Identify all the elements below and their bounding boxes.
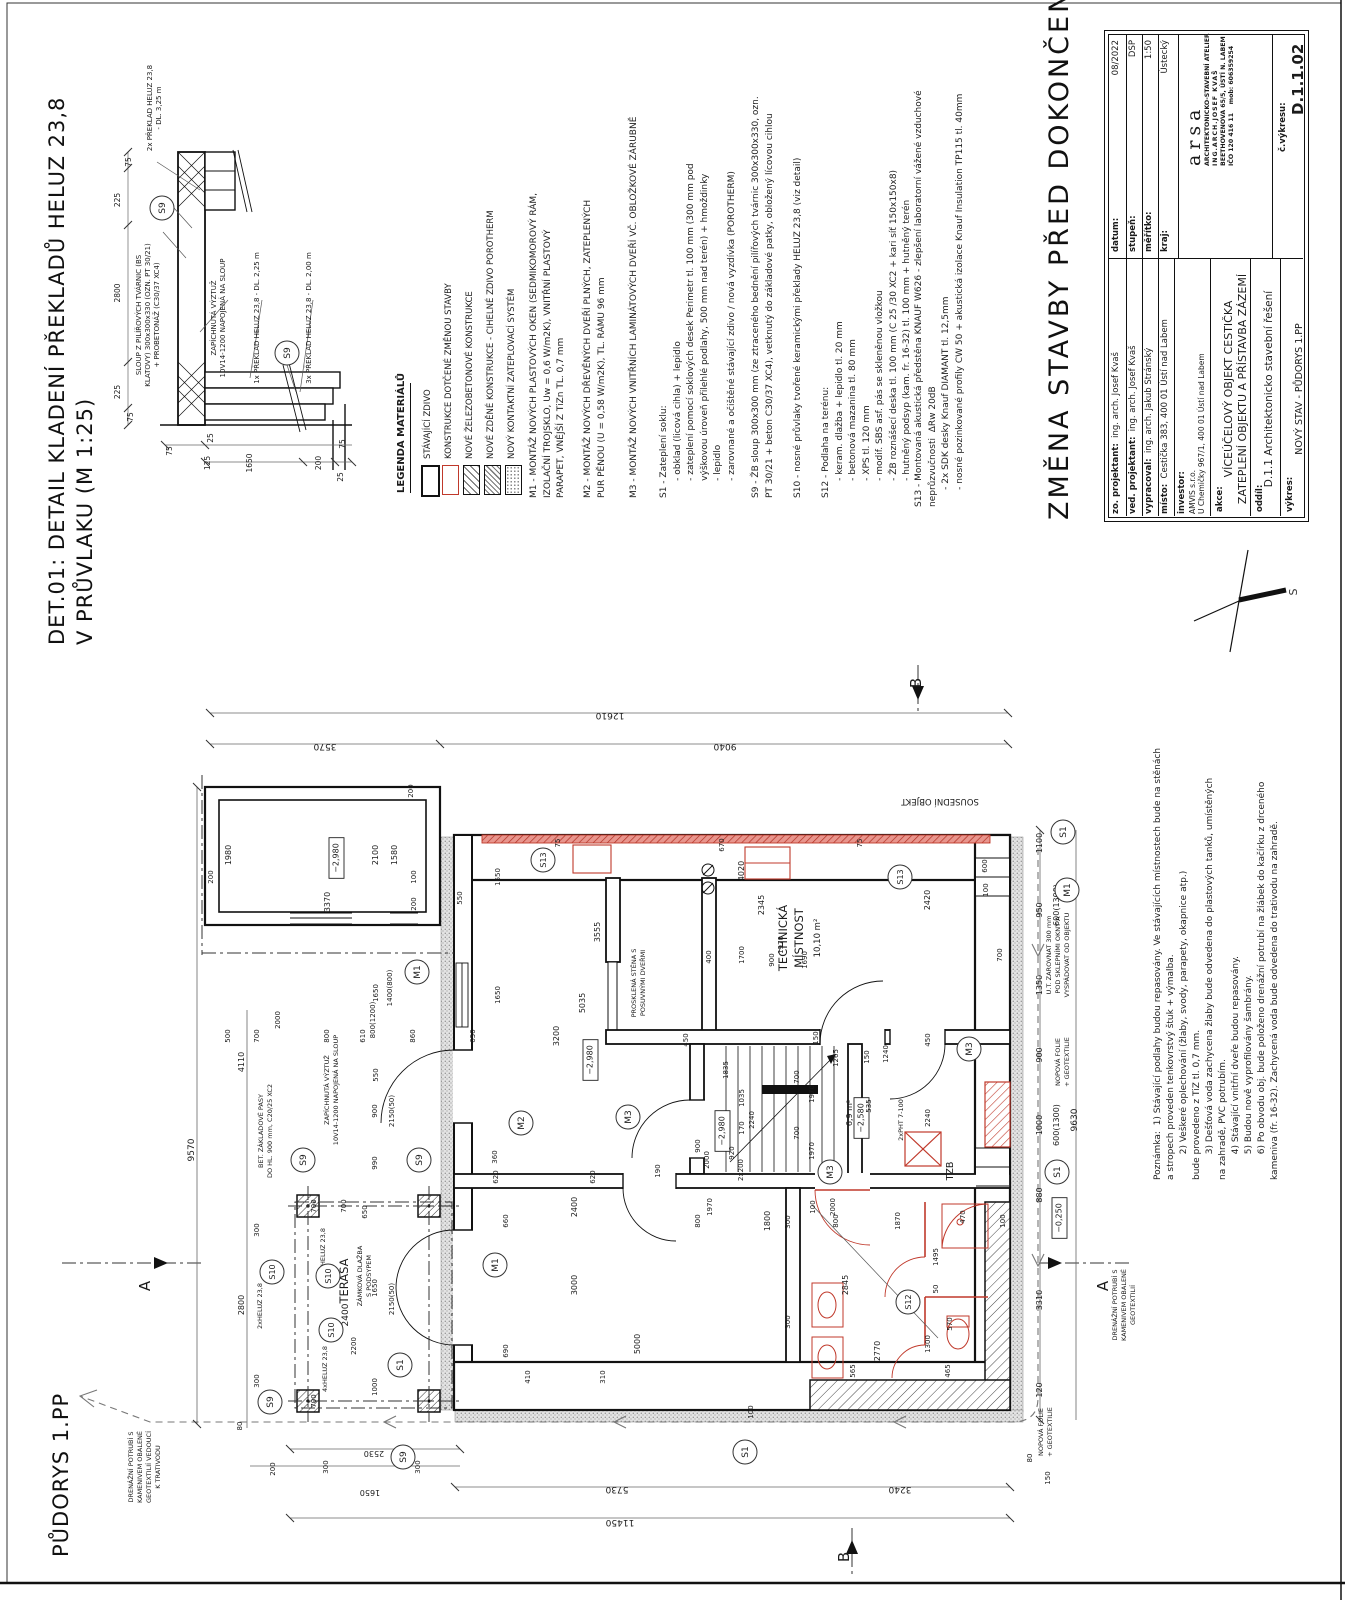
note-m3: M3 - MONTÁŽ NOVÝCH VNITŘNÍCH LAMINÁTOVÝC…	[628, 68, 642, 498]
detail-label: 3x PŘEKLAD HELUZ 23,8 - DL. 2,00 m	[304, 252, 313, 384]
arsa-line4: IČO 120 416 11 mob: 606359254	[1227, 38, 1236, 166]
plan-label: 570	[946, 1317, 954, 1330]
plan-label: 1650	[360, 1488, 380, 1497]
tb-row-kraj: kraj:Ústecký	[1159, 40, 1172, 252]
detail-label: SLOUP Z PILÍŘOVÝCH TVÁRNIC (BS	[134, 254, 143, 375]
plan-label: 50	[932, 1285, 940, 1294]
plan-label: 2xPHT 7-100	[897, 1099, 905, 1141]
tb-value-investor2: U Chemičky 967/1, 400 01 Ústí nad Labem	[1196, 266, 1207, 514]
plan-label: 170	[738, 1121, 746, 1134]
plan-label: 1970	[777, 936, 785, 954]
detail-label: 25	[206, 433, 215, 443]
detail-label: 125	[203, 456, 212, 471]
north-label: S	[1287, 588, 1300, 595]
detail-label: 75	[124, 157, 133, 167]
plan-label: 2345	[757, 895, 766, 915]
plan-label: 690	[502, 1344, 510, 1357]
plan-label: 300	[322, 1460, 330, 1473]
plan-label: 3370	[323, 892, 332, 912]
note-s13: S13 - Montovaná akustická předstěna KNAU…	[913, 55, 967, 507]
plan-label: 300	[414, 1460, 422, 1473]
plan-label: 700	[310, 1199, 318, 1212]
plan-label: A	[1094, 1280, 1112, 1291]
tb-value: ing. arch. Jakub Stránský	[1144, 348, 1154, 459]
plan-label: 650	[361, 1205, 369, 1218]
plan-label: 800	[323, 1029, 331, 1042]
plan-label: 100	[982, 883, 990, 896]
plan-label: 2000	[703, 1151, 711, 1169]
plan-label: 3555	[593, 922, 602, 942]
plan-label: 5000	[633, 1334, 642, 1354]
plan-label: 2000	[829, 1198, 837, 1216]
plan-label: ZAPÍCHNUTÁ VÝZTUŽ	[322, 1055, 331, 1125]
plan-label: 2000	[274, 1011, 282, 1029]
plan-label: NOPOVÁ FOLIE	[1053, 1038, 1062, 1086]
tb-label: vypracoval:	[1144, 458, 1154, 514]
plan-label: 2400	[570, 1197, 579, 1217]
legend-label-existing: STÁVAJÍCÍ ZDIVO	[422, 129, 435, 459]
plan-label: 360	[491, 1150, 499, 1163]
plan-label: −2,980	[718, 1116, 727, 1146]
plan-label: 470	[959, 1210, 967, 1223]
plan-label: TZB	[945, 1162, 956, 1182]
plan-label: 100	[410, 870, 418, 883]
tb-value: Ústecký	[1159, 40, 1172, 74]
ref-bubble-label: M1	[1063, 883, 1073, 897]
plan-label: 150	[863, 1050, 871, 1063]
ref-bubble-label: S9	[283, 347, 293, 359]
ref-bubble-label: S1	[1053, 1166, 1063, 1177]
detail-label: + PROBETONÁŽ (C30/37 XC4)	[152, 262, 161, 367]
plan-label: 620	[589, 1170, 597, 1183]
plan-label: 2150(50)	[388, 1283, 396, 1315]
plan-label: 150	[1044, 1471, 1052, 1484]
tb-row-vyp: vypracoval: ing. arch. Jakub Stránský	[1143, 266, 1156, 514]
plan-label: B	[907, 678, 925, 688]
plan-label: 1035	[738, 1089, 746, 1107]
plan-label: 700	[340, 1199, 348, 1212]
plan-label: 600	[981, 859, 989, 872]
tb-label: datum:	[1110, 218, 1123, 252]
plan-label: POD SKLEPNÍMI OKNY A	[1053, 916, 1062, 994]
tb-value: 1:50	[1143, 40, 1156, 59]
plan-label: 1350	[1035, 975, 1044, 995]
plan-label: 800	[832, 1214, 840, 1227]
plan-label: 1870	[894, 1212, 902, 1230]
tb-value-akce2: ZATEPLENÍ OBJEKTU A PŘÍSTAVBA ZÁZEMÍ	[1235, 264, 1252, 514]
ref-bubble-label: S1	[741, 1446, 751, 1457]
plan-label: 550	[372, 1068, 380, 1081]
plan-label: 3200	[552, 1026, 561, 1046]
ref-bubble-label: M1	[413, 965, 423, 979]
ref-bubble-label: S9	[158, 202, 168, 214]
tb-row-stupen: stupeň:DSP	[1127, 40, 1140, 252]
plan-label: 9040	[713, 741, 736, 751]
legend-swatch-affected	[442, 465, 459, 495]
plan-label: 1970	[808, 1085, 816, 1103]
tb-row-datum: datum:08/2022	[1110, 40, 1123, 252]
tb-divider-h	[1109, 258, 1303, 259]
detail-label: 2x PŘEKLAD HELUZ 23,8	[145, 65, 154, 151]
plan-label: 100	[999, 1214, 1007, 1227]
tb-row-meritko: měřítko:1:50	[1143, 40, 1156, 252]
tb-value: DSP	[1127, 40, 1140, 57]
plan-label: 700	[996, 948, 1004, 961]
plan-label: POSUVNÝMI DVEŘMI	[638, 950, 647, 1016]
plan-label: 700	[253, 1029, 261, 1042]
plan-label: 75	[554, 839, 562, 848]
plan-label: 700	[310, 1394, 318, 1407]
plan-label: KAMENIVEM OBALENÉ	[1119, 1269, 1128, 1341]
plan-label: 1580	[390, 845, 399, 865]
plan-label: −2,980	[586, 1045, 595, 1075]
tb-value: ing. arch. Josef Kvaš	[1111, 352, 1121, 443]
detail-label: KLATOVY) 300x300x330 (OZN. PT 30/21)	[144, 243, 152, 387]
drawing-sheet: 752252800225757525125165020025752x PŘEKL…	[0, 0, 1345, 1600]
detail-label: 1650	[245, 453, 254, 472]
plan-label: DRENÁŽNÍ POTRUBÍ S	[1110, 1269, 1119, 1340]
plan-label: 900	[1035, 1047, 1044, 1062]
plan-label: 10,10 m²	[813, 919, 823, 958]
tb-value: Cestička 383, 400 01 Ústí nad Labem	[1160, 319, 1170, 484]
ref-bubble-label: S1	[396, 1359, 406, 1370]
plan-label: 2530	[364, 1449, 384, 1458]
plan-label: 300	[784, 1215, 792, 1228]
ref-bubble-label: M3	[624, 1110, 634, 1124]
legend-title: LEGENDA MATERIÁLŮ	[394, 383, 411, 493]
ref-bubble-label: M1	[491, 1258, 501, 1272]
plan-label: 75	[856, 839, 864, 848]
tb-label: měřítko:	[1143, 212, 1156, 252]
tb-label: stupeň:	[1127, 216, 1140, 252]
plan-label: 1300	[924, 1335, 932, 1353]
plan-label: 150	[812, 1031, 820, 1044]
plan-label: 200	[410, 897, 418, 910]
plan-label: −2,980	[332, 843, 341, 873]
plan-label: 80	[236, 1422, 244, 1431]
plan-label: 1980	[224, 845, 233, 865]
tb-row-zo: zo. projektant: ing. arch. Josef Kvaš	[1110, 266, 1123, 514]
tb-value-vykres: NOVÝ STAV - PŮDORYS 1.PP	[1293, 264, 1307, 514]
plan-label: 900	[371, 1104, 379, 1117]
plan-label: 900	[694, 1139, 702, 1152]
plan-label: 2xHELUZ 23,8	[256, 1283, 264, 1329]
plan-label: + GEOTEXTILIE	[1063, 1037, 1071, 1087]
detail-label: 10V14-1200 NAPOJENÁ NA SLOUP	[218, 259, 227, 378]
plan-label: 1700	[738, 946, 746, 964]
plan-label: 4110	[237, 1052, 246, 1072]
plan-label: 400	[705, 950, 713, 963]
ref-bubble-label: S10	[327, 1322, 336, 1337]
plan-label: 120	[1035, 1382, 1044, 1397]
ref-bubble-label: S13	[896, 869, 905, 884]
plan-label: 610	[359, 1029, 367, 1042]
tb-label: místo:	[1160, 484, 1170, 514]
tb-label: zo. projektant:	[1111, 443, 1121, 514]
note-m2: M2 - MONTÁŽ NOVÝCH DŘEVĚNÝCH DVEŘÍ PLNÝC…	[582, 153, 609, 498]
detail-label: 1x PŘEKLAD HELUZ 23,8 - DL. 2,25 m	[252, 252, 261, 384]
note-s12: S12 - Podlaha na terénu: - keram. dlažba…	[820, 158, 915, 498]
main-title: ZMĚNA STAVBY PŘED DOKONČENÍM	[1040, 30, 1081, 520]
plan-label: 450	[682, 1033, 690, 1046]
plan-label: 10V14-1200 NAPOJENÁ NA SLOUP	[331, 1035, 340, 1145]
detail-label: - DL. 3,25 m	[155, 86, 163, 129]
plan-label: 620	[492, 1170, 500, 1183]
plan-label: 11450	[605, 1517, 634, 1527]
detail-label: ZAPÍCHNUTÁ VÝZTUŽ	[209, 280, 218, 355]
note-s9: S9 - ŽB sloup 300x300 mm (ze ztraceného …	[750, 53, 777, 498]
plan-label: 650	[469, 1029, 477, 1042]
plan-label: 2845	[841, 1275, 850, 1295]
plan-label: K TRATIVODU	[154, 1445, 162, 1489]
plan-label: 1240	[882, 1045, 890, 1063]
plan-label: 660	[502, 1214, 510, 1227]
detail-title-line2: V PRŮVLAKU (M 1:25)	[70, 155, 102, 645]
plan-label: 300	[253, 1374, 261, 1387]
detail-label: 25	[336, 472, 345, 482]
plan-label: 1650	[371, 1279, 379, 1297]
ref-bubble-label: M3	[965, 1042, 975, 1056]
ref-bubble-label: S9	[399, 1451, 409, 1463]
plan-label: 600(1300)	[1052, 1104, 1061, 1146]
plan-label: U.T. ZAROVNAT 300 mm	[1045, 916, 1053, 995]
legend-swatch-existing	[421, 465, 440, 497]
plan-label: 2400	[341, 1303, 351, 1326]
plan-label: 1100	[1035, 833, 1044, 853]
plan-label: 4xHELUZ 23,8	[321, 1346, 329, 1392]
note-m1: M1 - MONTÁŽ NOVÝCH PLASTOVÝCH OKEN (SEDM…	[528, 148, 569, 498]
tb-divider	[1178, 34, 1179, 258]
plan-label: 5035	[578, 993, 587, 1013]
tb-value: 08/2022	[1110, 40, 1123, 75]
legend-label-etics: NOVÝ KONTAKTNÍ ZATEPLOVACÍ SYSTÉM	[506, 129, 519, 459]
plan-label: VYSPÁDOVAT OD OBJEKTU	[1062, 912, 1071, 997]
plan-label: 2420	[923, 890, 932, 910]
plan-label: 800	[694, 1214, 702, 1227]
detail-label: 75	[165, 446, 174, 456]
plan-label: −0,250	[1055, 1203, 1064, 1233]
plan-label: 450	[924, 1033, 932, 1046]
plan-label: 410	[524, 1370, 532, 1383]
plan-label: DO HL. 900 mm, C20/25 XC2	[266, 1084, 274, 1178]
plan-label: 1650	[494, 986, 502, 1004]
note-s10: S10 - nosné průvlaky tvořené keramickými…	[792, 143, 806, 498]
plan-label: 1000	[1035, 1115, 1044, 1135]
plan-label: 3570	[313, 741, 336, 751]
plan-label: 3240	[888, 1484, 911, 1494]
detail-label: 200	[314, 456, 323, 471]
ref-bubble-label: S9	[299, 1154, 309, 1166]
legend-label-rc: NOVÉ ŽELEZOBETONOVÉ KONSTRUKCE	[464, 129, 477, 459]
tb-divider	[1272, 34, 1273, 258]
plan-label: + GEOTEXTILIE	[1046, 1407, 1054, 1457]
north-arrow-icon: S	[1194, 550, 1300, 652]
plan-label: 80	[1026, 1454, 1034, 1463]
legend-label-brick: NOVÉ ZDĚNÉ KONSTRUKCE - CIHELNÉ ZDIVO PO…	[485, 129, 498, 459]
plan-label: PROSKLENÁ STĚNA S	[629, 949, 638, 1018]
plan-label: 700	[793, 1070, 801, 1083]
legend-label-affected: KONSTRUKCE DOTČENÉ ZMĚNOU STAVBY	[443, 129, 456, 459]
plan-label: A	[136, 1280, 154, 1291]
plan-label: 1970	[706, 1198, 714, 1216]
plan-label: 1800	[763, 1211, 772, 1231]
tb-value: ing. arch. Josef Kvaš	[1128, 345, 1138, 436]
detail-title-line1: DET.01: DETAIL KLADENÍ PŘEKLADŮ HELUZ 23…	[42, 155, 74, 645]
plan-label: 535	[865, 1099, 873, 1112]
plan-label: 2240	[748, 1111, 756, 1129]
plan-label: 1650	[372, 984, 380, 1002]
plan-label: 860	[409, 1029, 417, 1042]
plan-label: 200	[269, 1462, 277, 1475]
plan-label: SOUSEDNÍ OBJEKT	[900, 796, 978, 808]
plan-label: 12610	[595, 710, 624, 720]
ref-bubble-label: S10	[324, 1268, 333, 1283]
plan-label: NOPOVÁ FOLIE	[1036, 1408, 1045, 1456]
plan-label: 2770	[873, 1341, 882, 1361]
plan-label: 465	[944, 1364, 952, 1377]
plan-label: 2x200	[737, 1159, 745, 1181]
plan-label: 565	[849, 1364, 857, 1377]
ref-bubble-label: M3	[826, 1165, 836, 1179]
plan-label: 5730	[605, 1484, 628, 1494]
plan-label: 1650	[494, 868, 502, 886]
plan-label: 2800	[237, 1295, 246, 1315]
tb-label: ved. projektant:	[1128, 437, 1138, 514]
plan-label: ZÁMKOVÁ DLAŽBA	[355, 1245, 364, 1306]
plan-label: 310	[599, 1370, 607, 1383]
tb-value-cislo: D.1.1.02	[1287, 42, 1310, 115]
ref-bubble-label: S13	[539, 852, 548, 867]
plan-label: GEOTEXTILIÍ VEDOUCÍ	[144, 1431, 153, 1503]
plan-label: 2150(50)	[388, 1095, 396, 1127]
plan-label: 2200	[350, 1337, 358, 1355]
plan-label: 700	[793, 1126, 801, 1139]
plan-label: 3310	[1035, 1290, 1044, 1310]
plan-label: 9570	[187, 1138, 197, 1161]
plan-label: 1265	[832, 1049, 840, 1067]
detail-label: 225	[113, 193, 122, 208]
ref-bubble-label: M2	[517, 1116, 527, 1130]
note-poznamka: Poznámka: 1) Stávající podlahy budou rep…	[1152, 680, 1282, 1180]
ref-bubble-label: S10	[268, 1264, 277, 1279]
legend-swatch-rc	[463, 465, 480, 495]
plan-label: 550	[456, 891, 464, 904]
plan-label: 100	[809, 1200, 817, 1213]
plan-label: 1400(800)	[386, 969, 394, 1006]
tb-label: kraj:	[1159, 230, 1172, 252]
tb-value-oddil: D.1.1 Architektonicko stavební řešení	[1262, 264, 1278, 514]
plan-label: 1970	[808, 1142, 816, 1160]
plan-title: PŮDORYS 1.PP	[46, 1357, 78, 1557]
plan-label: 990	[371, 1156, 379, 1169]
detail-label: 75	[338, 439, 347, 449]
legend-swatch-etics	[505, 465, 522, 495]
plan-label: 800(1200)	[369, 1001, 377, 1038]
plan-label: 3000	[570, 1275, 579, 1295]
plan-label: 500	[224, 1029, 232, 1042]
tb-row-ved: ved. projektant: ing. arch. Josef Kvaš	[1127, 266, 1140, 514]
plan-label: 200	[407, 784, 415, 797]
ref-bubble-label: S9	[266, 1396, 276, 1408]
plan-label: DRENÁŽNÍ POTRUBÍ S	[126, 1431, 135, 1502]
plan-label: 920	[728, 1146, 736, 1159]
plan-label: BET. ZÁKLADOVÉ PASY	[256, 1094, 265, 1168]
detail-label: 225	[113, 385, 122, 400]
plan-label: 2100	[371, 845, 380, 865]
plan-label: 1835	[722, 1061, 730, 1079]
plan-label: GEOTEXTILIÍ	[1128, 1285, 1137, 1325]
plan-label: 950	[1035, 902, 1044, 917]
plan-label: 300	[253, 1223, 261, 1236]
tb-divider	[1280, 258, 1281, 516]
plan-label: 200	[207, 870, 215, 883]
plan-label: 880	[1035, 1187, 1044, 1202]
plan-label: B	[835, 1552, 853, 1562]
tb-row-misto: místo: Cestička 383, 400 01 Ústí nad Lab…	[1159, 266, 1172, 514]
ref-bubble-label: S12	[904, 1294, 913, 1309]
ref-bubble-label: S9	[415, 1154, 425, 1166]
plan-label: 9630	[1070, 1108, 1080, 1131]
plan-label: 190	[654, 1164, 662, 1177]
plan-label: 4020	[737, 861, 746, 881]
plan-label: 670	[718, 838, 726, 851]
detail-label: 2800	[113, 283, 122, 302]
plan-label: 300	[784, 1315, 792, 1328]
plan-label: 1690	[801, 951, 809, 969]
note-s1: S1 - Zateplení soklu: - obklad (licová c…	[658, 123, 739, 498]
plan-label: 900	[768, 953, 776, 966]
plan-label: 1495	[932, 1248, 940, 1266]
tb-divider	[1174, 258, 1175, 516]
tb-divider	[1210, 258, 1211, 516]
legend-swatch-brick	[484, 465, 501, 495]
ref-bubble-label: S1	[1059, 826, 1069, 837]
plan-label: 6,9 m²	[845, 1100, 854, 1126]
plan-label: 100	[747, 1405, 755, 1418]
plan-label: 2240	[924, 1109, 932, 1127]
plan-label: 1000	[371, 1378, 379, 1396]
detail-label: 75	[126, 412, 135, 422]
plan-label: KAMENIVEM OBALENÉ	[135, 1431, 144, 1503]
